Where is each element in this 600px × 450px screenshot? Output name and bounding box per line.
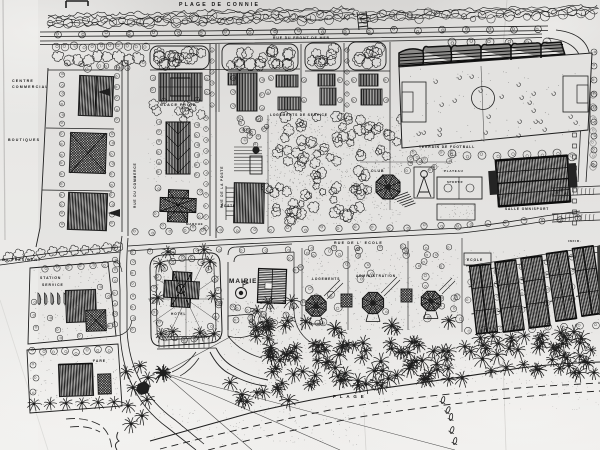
svg-text:LOGEMENTS: LOGEMENTS (312, 277, 340, 281)
svg-text:PLAGE DE CONNIE: PLAGE DE CONNIE (179, 2, 260, 8)
svg-text:RUE DE L' ECOLE: RUE DE L' ECOLE (334, 241, 383, 245)
svg-text:BOUTIQUES: BOUTIQUES (8, 138, 40, 142)
svg-text:STATION: STATION (40, 276, 61, 280)
svg-text:HOTEL: HOTEL (171, 312, 186, 316)
svg-text:CENTRE: CENTRE (12, 79, 34, 83)
svg-text:ECOLE: ECOLE (467, 258, 483, 262)
svg-text:RUE DU COMMERCE: RUE DU COMMERCE (133, 162, 137, 208)
svg-text:PLATEAU: PLATEAU (444, 169, 464, 173)
svg-text:COMMERCIAL: COMMERCIAL (12, 85, 49, 89)
svg-text:SERVICE: SERVICE (42, 283, 64, 287)
svg-text:POSTE: POSTE (221, 204, 236, 208)
svg-text:SALLE OMNISPORT: SALLE OMNISPORT (505, 207, 549, 211)
svg-text:TERRAIN DE FOOTBALL: TERRAIN DE FOOTBALL (419, 145, 475, 149)
svg-text:RUE DE LA POSTE: RUE DE LA POSTE (220, 166, 224, 208)
svg-text:INFIR.: INFIR. (568, 239, 581, 243)
svg-text:P L A G E: P L A G E (333, 394, 365, 399)
svg-text:RUE DU FRONT DE MER: RUE DU FRONT DE MER (273, 36, 330, 40)
svg-text:LOGEMENTS DE SERVICE: LOGEMENTS DE SERVICE (270, 113, 328, 117)
svg-text:CLUB: CLUB (371, 169, 384, 173)
svg-text:SPORTIF: SPORTIF (447, 180, 463, 184)
svg-text:FARE: FARE (93, 359, 106, 363)
